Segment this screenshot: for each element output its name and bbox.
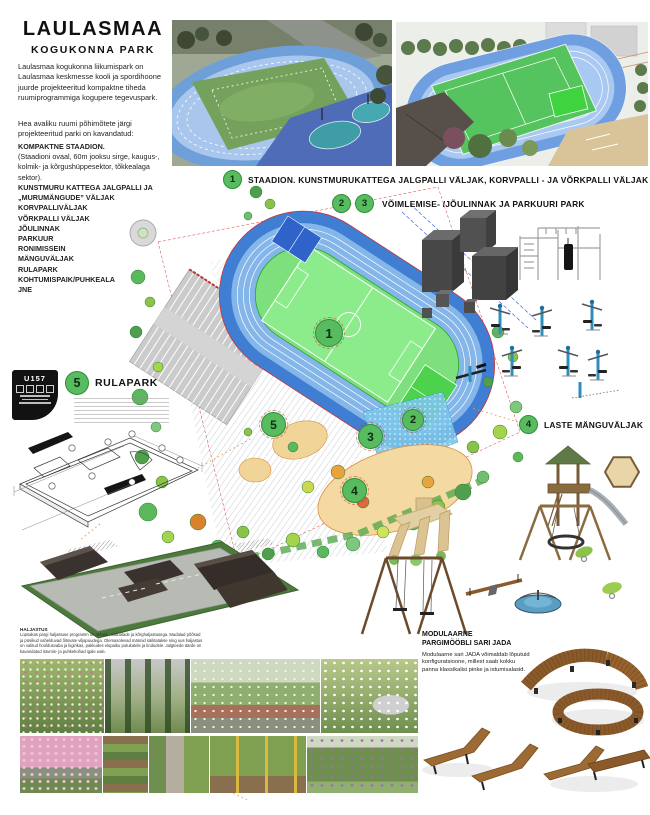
logo-badge: U157 (12, 370, 58, 420)
site-plan (129, 179, 536, 567)
poster-title: LAULASMAA (14, 18, 172, 41)
section-2-marker: 2 (332, 194, 351, 213)
fitness-machines-render (456, 300, 620, 398)
poster-canvas: LAULASMAA KOGUKONNA PARK Laulasmaa koguk… (0, 0, 650, 815)
photo-wildflower-garden (20, 659, 104, 733)
section-heading-1: 1 STAADION. KUNSTMURUKATTEGA JALGPALLI V… (223, 170, 648, 189)
small-play-equipment-render (466, 544, 623, 613)
feature-item: JÕULINNAK (18, 224, 168, 234)
playground-slides-render (388, 498, 452, 566)
badge-fine-print (12, 395, 58, 404)
badge-pictograms (12, 385, 58, 393)
furniture-text-block: MODULAARNE PARGIMÖÖBLI SARI JADA Modulaa… (422, 631, 530, 675)
feature-item: (Staadioni ovaal, 60m jooksu sirge, kaug… (18, 152, 168, 183)
section-heading-5: 5 RULAPARK (65, 371, 158, 395)
photo-gravel-path (149, 736, 209, 793)
plan-marker-5: 5 (261, 412, 286, 437)
stadium-render-perspective (145, 20, 398, 188)
parkour-blocks-render (422, 210, 518, 318)
feature-item: VÕRKPALLI VÄLJAK (18, 214, 168, 224)
feature-item: PARKUUR (18, 234, 168, 244)
feature-list: KOMPAKTNE STAADION. (Staadioni ovaal, 60… (18, 142, 168, 295)
playground-tower-render (546, 446, 639, 526)
photo-hammocks (210, 736, 306, 793)
section-5-label: RULAPARK (95, 377, 158, 389)
greenery-note: HALJASTUS Lopsakas pargi haljastuse prog… (20, 627, 204, 654)
plan-marker-4: 4 (342, 478, 367, 503)
feature-item: RULAPARK (18, 265, 168, 275)
furniture-body: Modulaarne sari JADA võimaldab lõputuid … (422, 652, 530, 675)
photo-tree-alley-building (105, 659, 190, 733)
skatepark-parts-list (74, 398, 169, 425)
feature-item: KOMPAKTNE STAADION. (18, 142, 168, 152)
plan-marker-2: 2 (402, 409, 424, 431)
skatepark-drawing (14, 431, 202, 530)
skatepark-render (22, 538, 298, 638)
feature-item: KORVPALLIVÄLJAK (18, 203, 168, 213)
nest-swing-render (520, 506, 610, 560)
section-5-marker: 5 (65, 371, 89, 395)
intro-paragraph-1: Laulasmaa kogukonna liikumispark on Laul… (18, 62, 166, 103)
calisthenics-frame-render (520, 226, 600, 280)
feature-item: MÄNGUVÄLJAK (18, 254, 168, 264)
stadium-render-aerial (394, 22, 649, 181)
plan-marker-3: 3 (358, 424, 383, 449)
section-1-label: STAADION. KUNSTMURUKATTEGA JALGPALLI VÄL… (248, 175, 648, 185)
park-furniture-renders (422, 655, 650, 792)
section-3-marker: 3 (355, 194, 374, 213)
furniture-heading-line1: MODULAARNE (422, 631, 530, 640)
feature-item: RONIMISSEIN (18, 244, 168, 254)
intro-paragraph-2: Hea avaliku ruumi põhimõtete järgi proje… (18, 119, 166, 140)
feature-item: JNE (18, 285, 168, 295)
section-2-3-label: VÕIMLEMISE- /JÕULINNAK JA PARKUURI PARK (382, 199, 585, 209)
section-heading-4: 4 LASTE MÄNGUVÄLJAK (519, 415, 643, 434)
furniture-heading-line2: PARGIMÖÖBLI SARI JADA (422, 640, 530, 649)
badge-code: U157 (12, 374, 58, 383)
photo-blossom-path (20, 736, 102, 793)
photo-terraced-planting (103, 736, 148, 793)
plan-marker-1: 1 (315, 319, 343, 347)
poster-subtitle: KOGUKONNA PARK (14, 44, 172, 56)
photo-shrubs-purple (307, 736, 418, 793)
section-heading-2-3: 2 3 VÕIMLEMISE- /JÕULINNAK JA PARKUURI P… (332, 194, 585, 213)
feature-item: KOHTUMISPAIK/PUHKEALA (18, 275, 168, 285)
section-4-marker: 4 (519, 415, 538, 434)
section-1-marker: 1 (223, 170, 242, 189)
photo-street-planting (191, 659, 320, 733)
title-block: LAULASMAA KOGUKONNA PARK (14, 18, 172, 56)
section-4-label: LASTE MÄNGUVÄLJAK (544, 420, 643, 430)
photo-bench-flowers (321, 659, 418, 733)
greenery-note-body: Lopsakas pargi haljastuse programm on ri… (20, 632, 204, 654)
swing-set-render (362, 558, 466, 634)
feature-item: KUNSTMURU KATTEGA JALGPALLI JA „MURUMÄNG… (18, 183, 168, 203)
